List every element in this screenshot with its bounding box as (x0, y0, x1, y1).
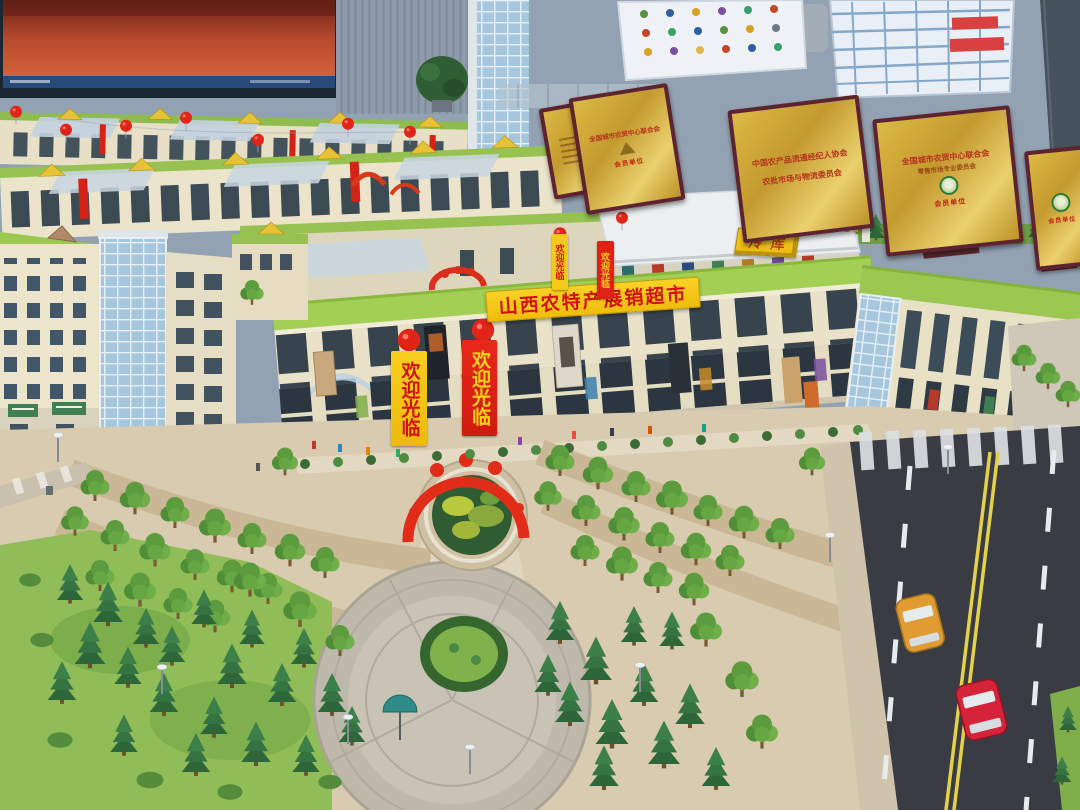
committee-logo-icon (1050, 192, 1071, 213)
side-block (232, 222, 308, 320)
model-showroom-photo: 山西农特产展销超市 欢迎光临 欢迎光临 欢迎光临 欢迎光临 冷库 全国城市农贸中… (0, 0, 1080, 810)
welcome-banner-back-yellow: 欢迎光临 (552, 234, 568, 290)
plaque-subtitle: 农批市场与物流委员会 (762, 169, 842, 187)
welcome-banner-yellow: 欢迎光临 (391, 351, 427, 446)
award-plaque-brokers-association: 中国农产品流通经纪人协会 农批市场与物流委员会 (727, 94, 874, 243)
federation-logo-icon (618, 140, 636, 154)
logo-board (618, 0, 806, 80)
member-seal-text: 会员单位 (613, 154, 644, 169)
map-board (830, 0, 1014, 98)
award-plaque-retail-committee: 全国城市农贸中心联合会 零售市场专业委员会 会员单位 (872, 105, 1024, 257)
member-seal-text: 会员单位 (1048, 213, 1077, 225)
award-plaque-national-federation: 全国城市农贸中心联合会 会员单位 (568, 83, 685, 215)
pillar (336, 0, 484, 114)
welcome-banner-red: 欢迎光临 (462, 340, 497, 436)
committee-logo-icon (938, 175, 959, 196)
plaque-title: 中国农产品流通经纪人协会 (752, 149, 848, 169)
member-seal-text: 会员单位 (934, 196, 967, 209)
video-screen (0, 0, 340, 98)
welcome-banner-back-red: 欢迎光临 (597, 241, 614, 299)
glass-tower (468, 0, 529, 158)
plaque-title: 全国城市农贸中心联合会 (901, 150, 989, 168)
